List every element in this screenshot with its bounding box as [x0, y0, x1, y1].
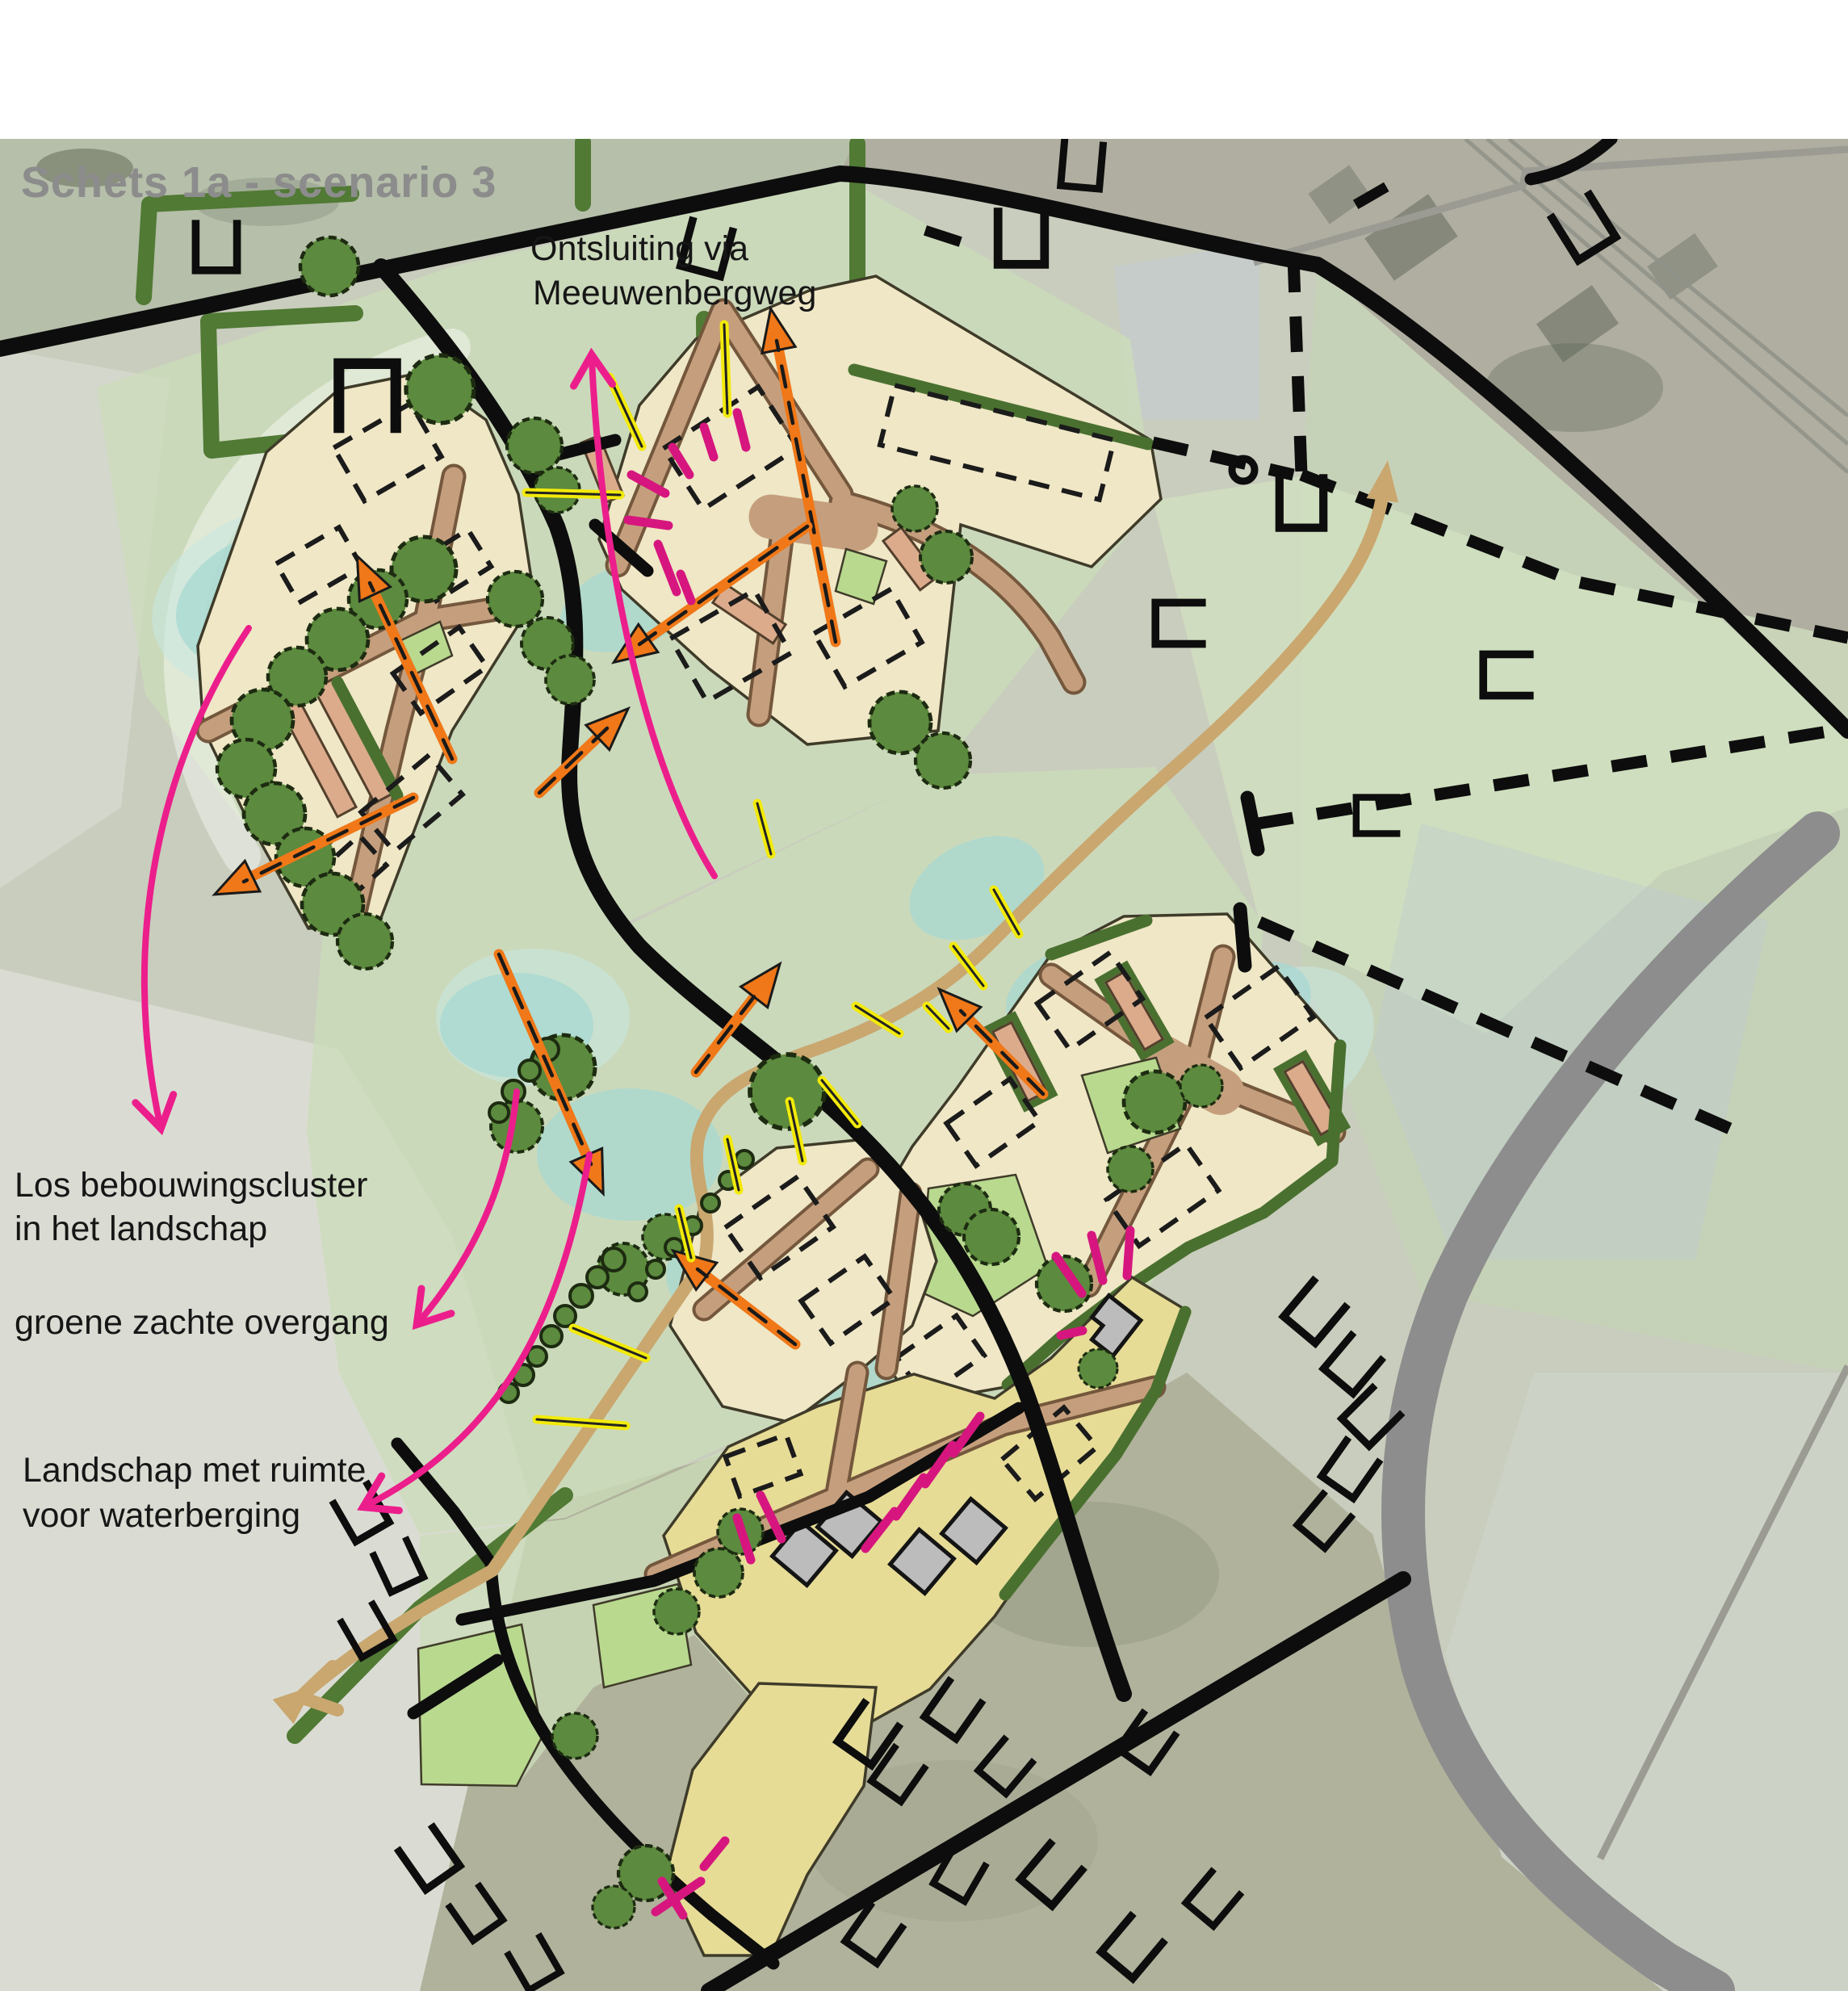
label-ontsluiting-2: Meeuwenbergweg [533, 274, 816, 312]
plan-map: Schets 1a - scenario 3 Ontsluiting via M… [0, 0, 1848, 1991]
label-overgang: groene zachte overgang [15, 1303, 389, 1342]
label-waterberging-2: voor waterberging [23, 1496, 300, 1535]
page-title-overlay: Schets 1a - scenario 3 [21, 158, 497, 207]
top-white-band [0, 0, 1848, 139]
label-waterberging-1: Landschap met ruimte [23, 1451, 366, 1490]
label-cluster-1: Los bebouwingscluster [15, 1166, 367, 1205]
planning-sketch-page: Schets 1a - scenario 3 Ontsluiting via M… [0, 0, 1848, 1991]
label-ontsluiting-1: Ontsluiting via [530, 229, 748, 268]
label-cluster-2: in het landschap [15, 1209, 267, 1248]
